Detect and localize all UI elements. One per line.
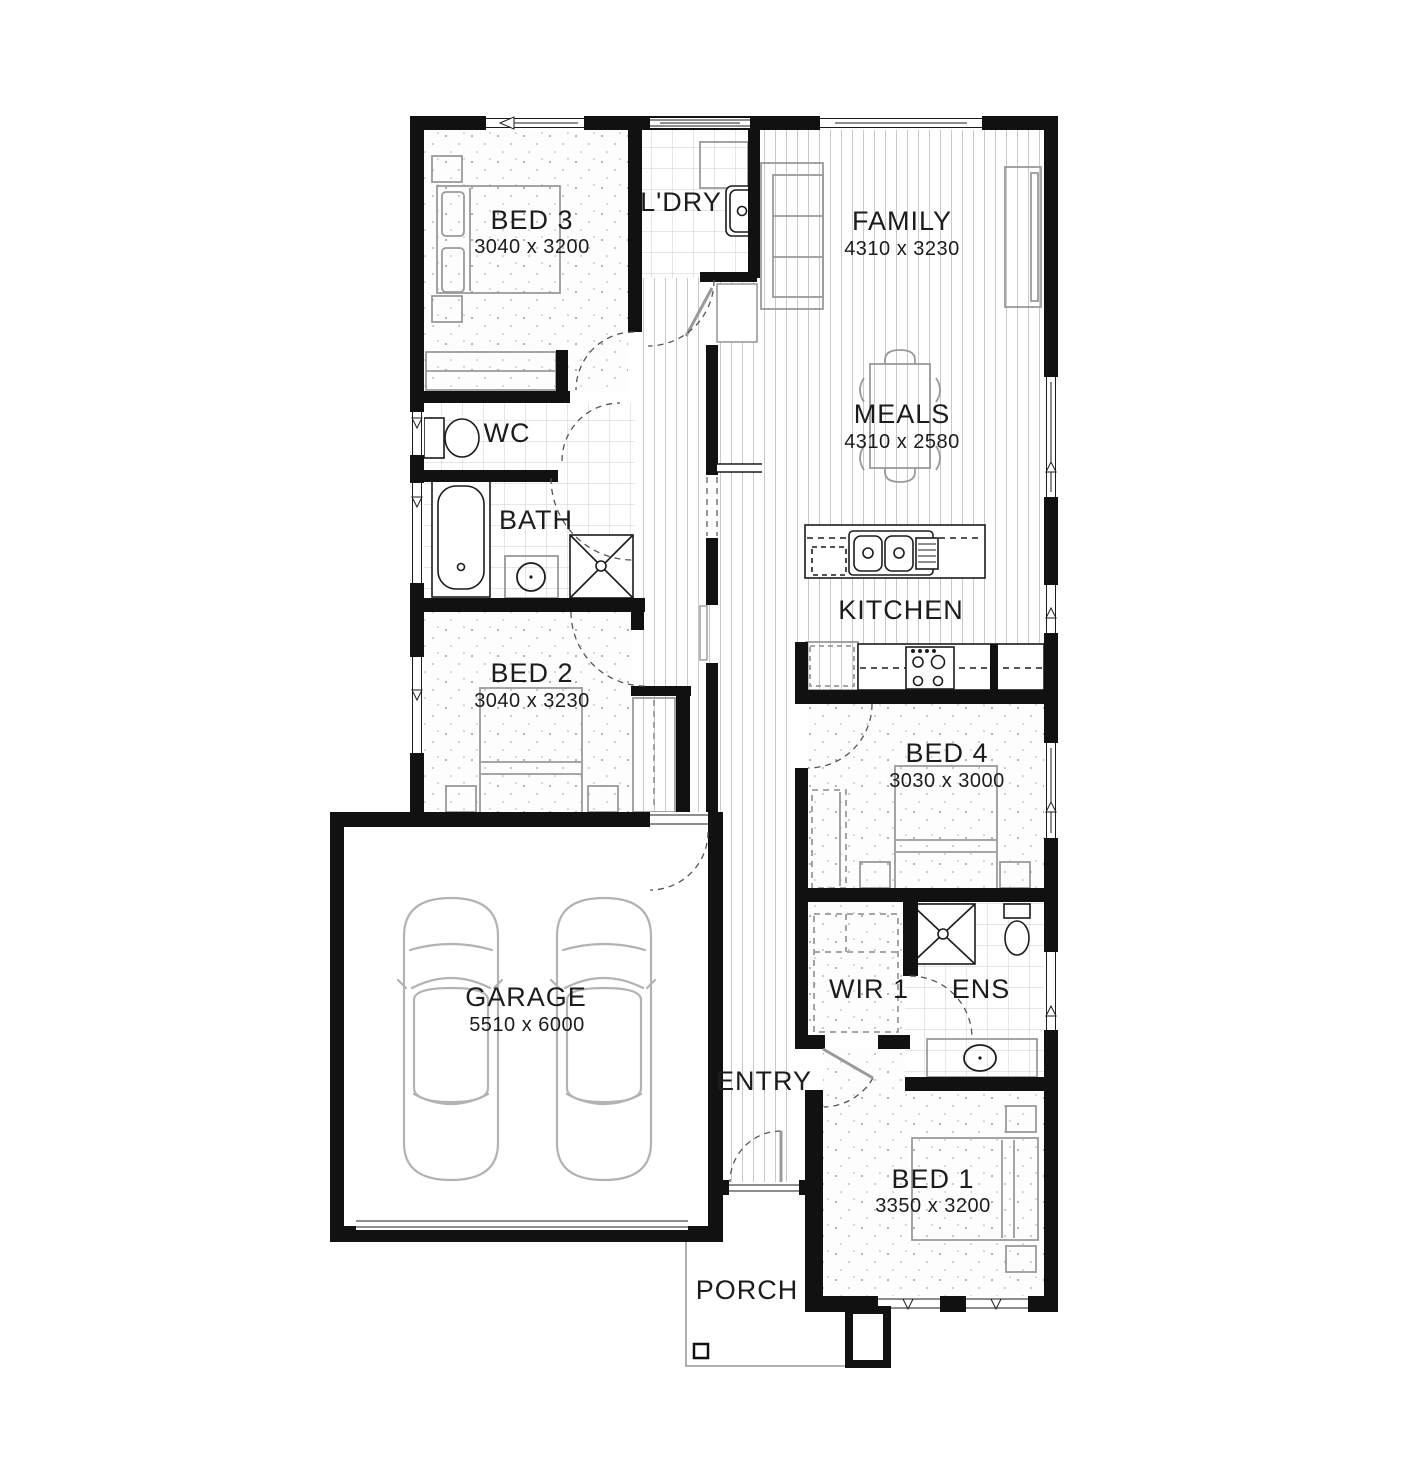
bed4-window — [1044, 743, 1058, 838]
bed3-window — [486, 116, 584, 130]
bath-shower — [570, 535, 633, 598]
label-laundry: L'DRY — [640, 187, 722, 217]
label-entry: ENTRY — [716, 1066, 812, 1096]
laundry-window — [650, 118, 750, 128]
bed1-window-right — [966, 1296, 1028, 1312]
meals-window — [1044, 377, 1058, 497]
front-door-sill — [723, 1180, 805, 1195]
label-porch: PORCH — [696, 1275, 799, 1305]
label-bath: BATH — [499, 505, 573, 535]
garage-entry-sill — [650, 812, 708, 827]
dims-bed1: 3350 x 3200 — [875, 1195, 991, 1217]
bathtub — [432, 478, 490, 597]
family-window — [820, 116, 982, 130]
label-garage: GARAGE — [465, 982, 587, 1012]
dims-bed3: 3040 x 3200 — [474, 236, 590, 258]
dims-meals: 4310 x 2580 — [844, 431, 960, 453]
label-bed1: BED 1 — [891, 1164, 974, 1194]
kitchen-island — [805, 525, 985, 578]
kitchen-window — [1044, 585, 1058, 633]
dims-bed4: 3030 x 3000 — [889, 770, 1005, 792]
garage-door — [356, 1218, 688, 1230]
porch-return-wall — [849, 1310, 887, 1364]
wc-window — [410, 412, 424, 455]
label-family: FAMILY — [852, 206, 952, 236]
label-bed2: BED 2 — [490, 658, 573, 688]
garage-door-arc — [650, 832, 708, 890]
label-wir1: WIR 1 — [829, 974, 909, 1004]
garage-cars — [398, 898, 655, 1180]
kitchen-bench — [858, 644, 1044, 690]
label-kitchen: KITCHEN — [838, 595, 964, 625]
label-wc: WC — [484, 418, 531, 448]
dims-bed2: 3040 x 3230 — [474, 690, 590, 712]
floor-plan: BED 3 3040 x 3200 L'DRY FAMILY 4310 x 32… — [0, 0, 1407, 1465]
dims-garage: 5510 x 6000 — [469, 1014, 585, 1036]
label-bed3: BED 3 — [490, 205, 573, 235]
ens-toilet — [1004, 904, 1030, 955]
porch-post — [694, 1344, 708, 1358]
label-ens: ENS — [952, 974, 1011, 1004]
label-meals: MEALS — [854, 399, 951, 429]
ens-shower — [911, 904, 975, 964]
wc-toilet — [424, 418, 479, 458]
floor-plan-drawing: BED 3 3040 x 3200 L'DRY FAMILY 4310 x 32… — [0, 0, 1407, 1465]
bath-window — [410, 483, 424, 583]
ens-window — [1044, 952, 1058, 1030]
bed2-window — [410, 657, 424, 753]
label-bed4: BED 4 — [905, 738, 988, 768]
dims-family: 4310 x 3230 — [844, 238, 960, 260]
